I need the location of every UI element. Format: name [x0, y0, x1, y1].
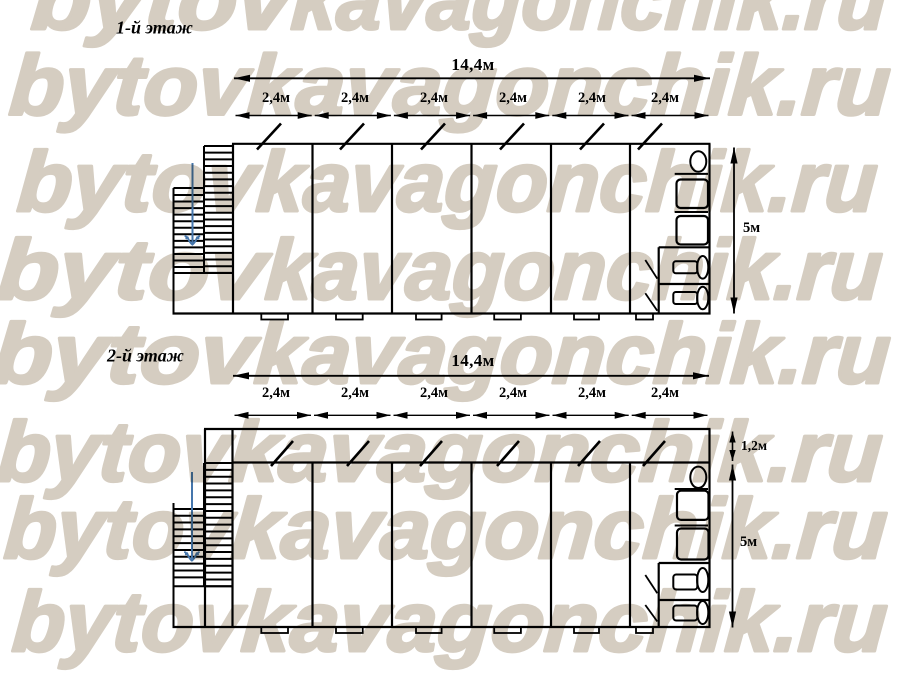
svg-text:kavagonchik.ru: kavagonchik.ru [229, 482, 891, 577]
svg-text:kavagonchik.ru: kavagonchik.ru [263, 223, 886, 318]
svg-text:bytov: bytov [10, 575, 250, 670]
svg-text:kavagonchik.ru: kavagonchik.ru [254, 135, 881, 230]
svg-text:kavagonchik.ru: kavagonchik.ru [245, 39, 894, 134]
svg-text:bytov: bytov [0, 223, 275, 318]
svg-text:bytov: bytov [7, 39, 257, 134]
svg-text:kavagonchik.ru: kavagonchik.ru [252, 307, 894, 402]
svg-text:kavagonchik.ru: kavagonchik.ru [239, 575, 891, 670]
svg-text:bytov: bytov [2, 482, 240, 577]
svg-text:bytov: bytov [15, 135, 266, 230]
svg-text:bytov: bytov [0, 307, 264, 402]
